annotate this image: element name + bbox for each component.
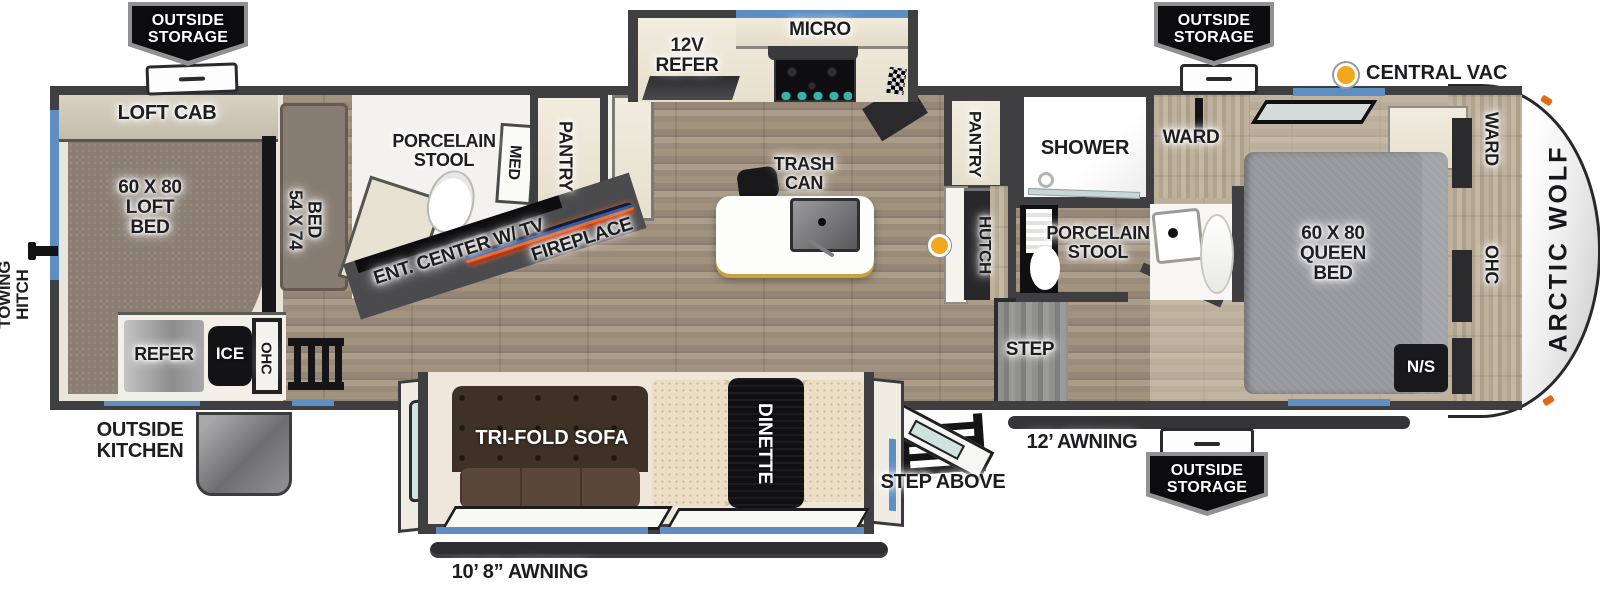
loft-bed-label: 60 X 80 LOFT BED: [95, 178, 205, 237]
bath-ward-label: WARD: [1158, 128, 1224, 148]
dish-mat: [886, 67, 906, 95]
bath-sink: [1151, 208, 1204, 265]
outside-storage-badge-top-right: OUTSIDE STORAGE: [1154, 2, 1274, 66]
brand-text: ARCTIC WOLF: [1545, 144, 1574, 352]
towing-hitch-label-box: TOWING HITCH: [0, 240, 42, 350]
roof-vent: [1251, 100, 1378, 124]
front-ward-door1: [1452, 118, 1472, 188]
step-above-label: STEP ABOVE: [880, 472, 1006, 493]
queen-bed-label: 60 X 80 QUEEN BED: [1288, 224, 1378, 283]
outside-storage-label-br: OUTSIDE STORAGE: [1167, 463, 1247, 497]
awning-10-8-label: 10’ 8” AWNING: [440, 562, 600, 583]
loft-ladder-icon: [288, 338, 344, 390]
refer12v-label: 12V REFER: [644, 36, 730, 76]
shower-label: SHOWER: [1040, 138, 1130, 159]
towing-hitch-label: TOWING HITCH: [0, 261, 32, 329]
bath-bottom-wall: [1016, 292, 1128, 302]
rear-ohc-label: OHC: [258, 332, 274, 384]
nightstand-label: N/S: [1394, 358, 1448, 376]
front-ward-label: WARD: [1482, 104, 1501, 174]
outside-kitchen-label: OUTSIDE KITCHEN: [88, 420, 192, 462]
mid-porcelain-stool-label: PORCELAIN STOOL: [388, 132, 500, 169]
floorplan-canvas: ARCTIC WOLF LOFT CAB 60 X 80 LOFT BED 54…: [0, 0, 1600, 612]
bedroom-top-window: [1293, 88, 1385, 96]
refer-label: REFER: [124, 345, 204, 364]
pantry-left-label: PANTRY: [556, 108, 575, 204]
pantry-right-label: PANTRY: [966, 104, 984, 184]
bath-sink-faucet: [1168, 228, 1178, 238]
bath-right-wall: [1232, 186, 1244, 302]
micro-label: MICRO: [778, 20, 862, 40]
hutch-label: HUTCH: [976, 210, 994, 280]
bath-porcelain-stool-label: PORCELAIN STOOL: [1044, 224, 1152, 261]
burner-knobs: [778, 92, 852, 100]
refer12v-front: [642, 76, 740, 100]
dinette-label: DINETTE: [754, 396, 774, 492]
dinette-bench-left: [652, 380, 732, 506]
outside-storage-badge-bottom-right: OUTSIDE STORAGE: [1146, 452, 1268, 516]
bottom-wall-window-right: [1288, 399, 1390, 406]
outside-storage-label-tl: OUTSIDE STORAGE: [148, 13, 228, 47]
loft-cab-label: LOFT CAB: [92, 103, 242, 124]
ice-label: ICE: [208, 345, 252, 363]
slide-accent-right: [660, 527, 864, 534]
outside-storage-label-tr: OUTSIDE STORAGE: [1174, 13, 1254, 47]
front-ward-door2: [1452, 250, 1472, 322]
kitchen-slide-window: [736, 10, 908, 18]
dinette-bench-right: [800, 380, 864, 502]
vac-inlet-dot: [928, 234, 951, 257]
island-sink: [790, 198, 860, 252]
central-vac-label: CENTRAL VAC: [1366, 62, 1507, 85]
bath-vessel: [1200, 214, 1234, 294]
awning-12-label: 12’ AWNING: [1022, 432, 1142, 453]
baggage-door-top-left: [146, 62, 239, 95]
step-label: STEP: [1000, 340, 1060, 360]
sink-drain: [818, 218, 826, 226]
central-vac-dot: [1334, 63, 1358, 87]
front-ohc-label: OHC: [1482, 236, 1501, 294]
baggage-door-top-right: [1180, 64, 1258, 94]
bunk-54-label: 54 X 74 BED: [286, 150, 323, 290]
awning-rail-slide-side: [430, 542, 888, 558]
outside-storage-badge-top-left: OUTSIDE STORAGE: [128, 2, 248, 66]
tri-fold-sofa-label: TRI-FOLD SOFA: [472, 428, 632, 449]
tri-fold-sofa-seat: [460, 468, 640, 508]
bottom-wall-window-left2: [292, 399, 334, 406]
front-ward-door3: [1452, 338, 1472, 394]
trash-can-label: TRASH CAN: [762, 155, 846, 192]
outside-kitchen-panel: [196, 412, 292, 496]
slide-accent-left: [436, 527, 648, 534]
shower-drain: [1038, 172, 1054, 188]
